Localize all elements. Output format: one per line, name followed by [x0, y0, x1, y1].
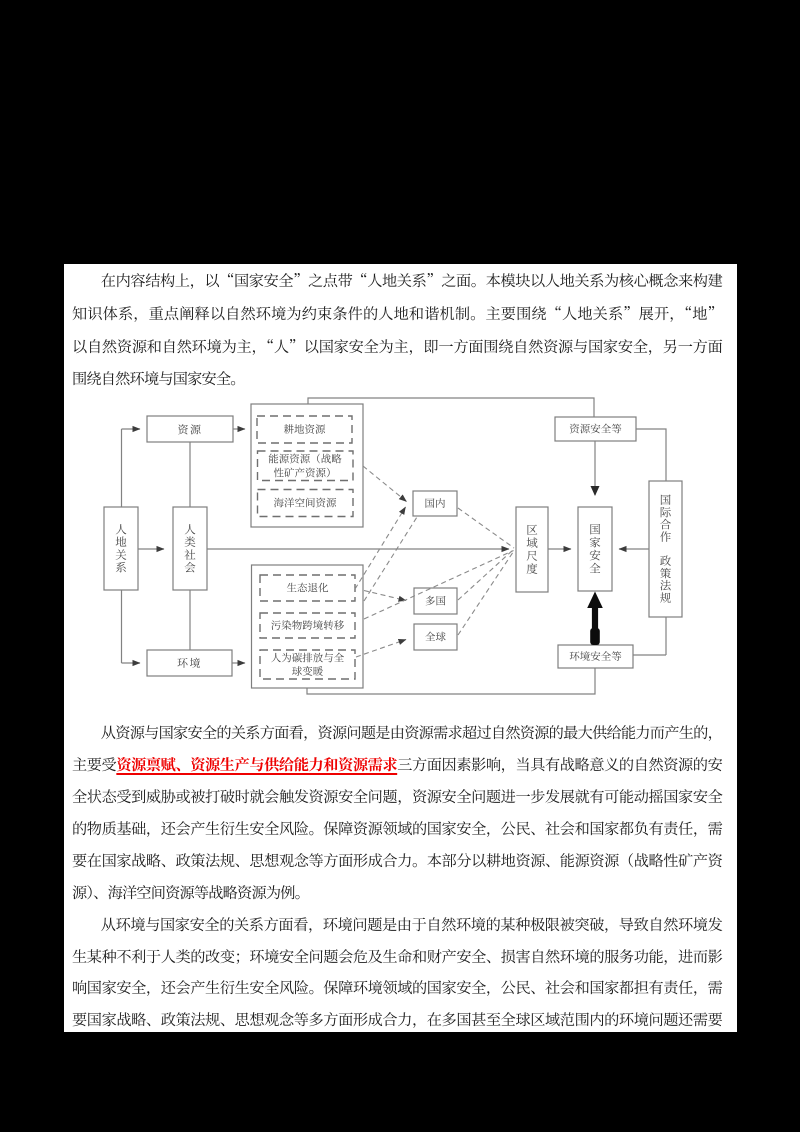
svg-text:会: 会 — [184, 559, 196, 575]
svg-text:污染物跨境转移: 污染物跨境转移 — [271, 618, 345, 633]
svg-text:度: 度 — [526, 561, 538, 577]
svg-text:资源: 资源 — [178, 422, 203, 438]
svg-text:生态退化: 生态退化 — [287, 581, 329, 596]
svg-text:国内: 国内 — [425, 496, 446, 511]
svg-text:耕地资源: 耕地资源 — [284, 422, 326, 437]
svg-text:性矿产资源）: 性矿产资源） — [274, 465, 337, 480]
svg-text:多国: 多国 — [425, 594, 446, 609]
svg-text:全球: 全球 — [425, 630, 446, 645]
svg-text:规: 规 — [660, 590, 672, 606]
svg-text:环境: 环境 — [177, 655, 202, 671]
svg-text:能源资源（战略: 能源资源（战略 — [268, 452, 342, 467]
svg-text:系: 系 — [115, 559, 127, 575]
svg-text:资源安全等: 资源安全等 — [569, 422, 622, 437]
svg-text:环境安全等: 环境安全等 — [569, 649, 622, 664]
svg-text:海洋空间资源: 海洋空间资源 — [274, 496, 337, 511]
svg-text:全: 全 — [589, 561, 601, 577]
svg-text:球变暖: 球变暖 — [292, 664, 324, 679]
svg-text:作: 作 — [660, 529, 672, 545]
